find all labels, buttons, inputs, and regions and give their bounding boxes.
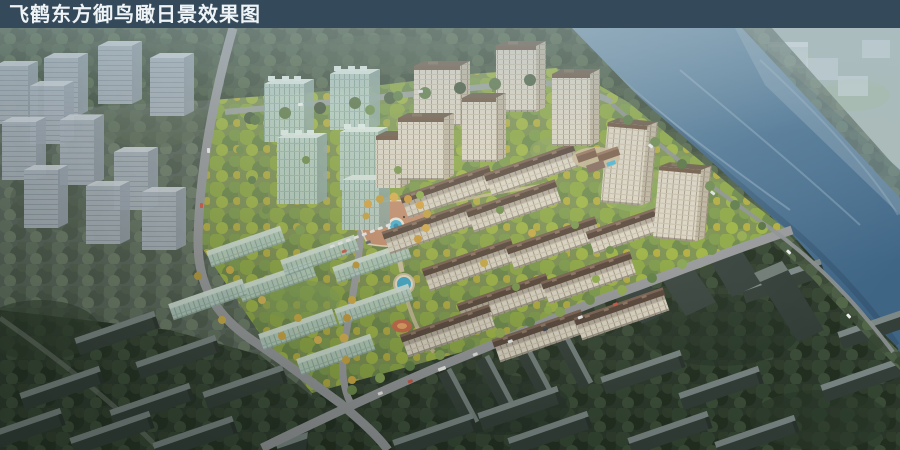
rendering: 飞鹤东方御鸟瞰日景效果图 [0,0,900,450]
title-text: 飞鹤东方御鸟瞰日景效果图 [0,0,261,28]
aerial-scene [0,0,900,450]
title-bar: 飞鹤东方御鸟瞰日景效果图 [0,0,900,28]
atmosphere [0,28,900,450]
